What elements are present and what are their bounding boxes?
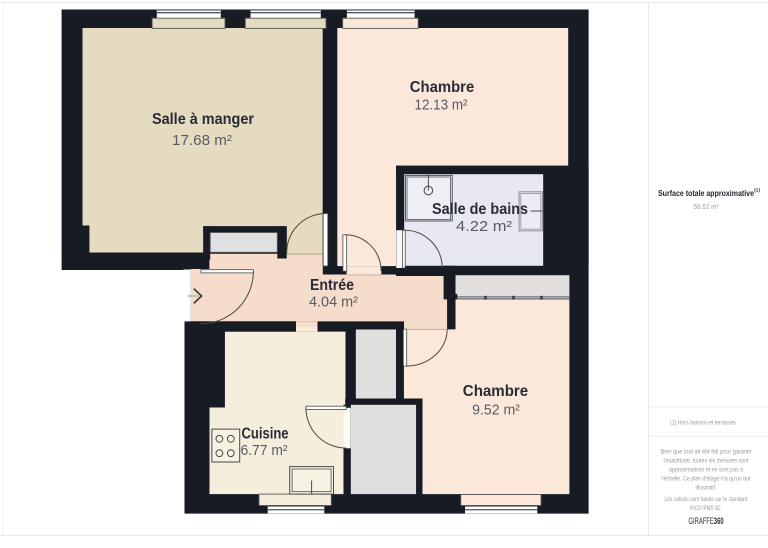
svg-text:Entrée: Entrée (310, 277, 354, 294)
svg-text:approximatives et ne sont pas: approximatives et ne sont pas à (669, 467, 743, 474)
svg-text:(1) Hors balcons et terrasses: (1) Hors balcons et terrasses (670, 420, 736, 427)
svg-text:Les calculs sont basés sur le: Les calculs sont basés sur le standard (665, 496, 748, 503)
svg-text:9.52 m²: 9.52 m² (472, 403, 520, 419)
svg-text:6.77 m²: 6.77 m² (241, 443, 288, 459)
svg-text:12.13 m²: 12.13 m² (415, 98, 468, 114)
svg-text:l'échelle. Ce plan d'étage n'a: l'échelle. Ce plan d'étage n'a qu'un but (662, 476, 751, 483)
svg-text:Cuisine: Cuisine (241, 426, 288, 443)
svg-text:4.22 m²: 4.22 m² (456, 219, 512, 235)
svg-text:58.62 m²: 58.62 m² (694, 202, 720, 211)
svg-text:l'exactitude, toutes les mesur: l'exactitude, toutes les mesures sont (664, 458, 749, 465)
svg-text:Salle de bains: Salle de bains (432, 201, 528, 218)
svg-text:Bien que tout ait été fait pou: Bien que tout ait été fait pour garantir (661, 449, 753, 456)
svg-text:GIRAFFE360: GIRAFFE360 (688, 516, 723, 527)
svg-text:4.04 m²: 4.04 m² (309, 295, 358, 311)
svg-text:Chambre: Chambre (410, 79, 475, 96)
svg-text:Chambre: Chambre (463, 383, 529, 400)
svg-text:RICS IPMS 3C.: RICS IPMS 3C. (690, 505, 722, 512)
svg-text:illustratif.: illustratif. (696, 485, 717, 492)
svg-text:Surface totale approximative: Surface totale approximative (658, 189, 754, 198)
svg-text:Salle à manger: Salle à manger (152, 111, 254, 128)
svg-text:(1): (1) (754, 188, 760, 194)
svg-text:17.68 m²: 17.68 m² (172, 133, 232, 149)
